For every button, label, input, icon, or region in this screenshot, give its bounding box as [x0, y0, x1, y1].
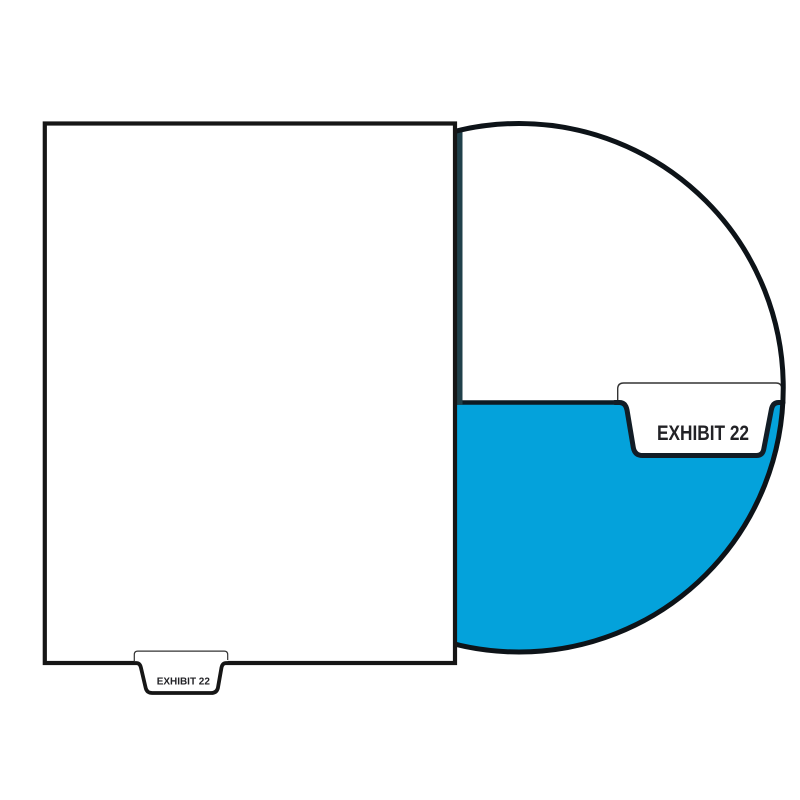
svg-text:EXHIBIT 22: EXHIBIT 22 [157, 676, 210, 687]
svg-text:EXHIBIT 22: EXHIBIT 22 [657, 421, 749, 445]
